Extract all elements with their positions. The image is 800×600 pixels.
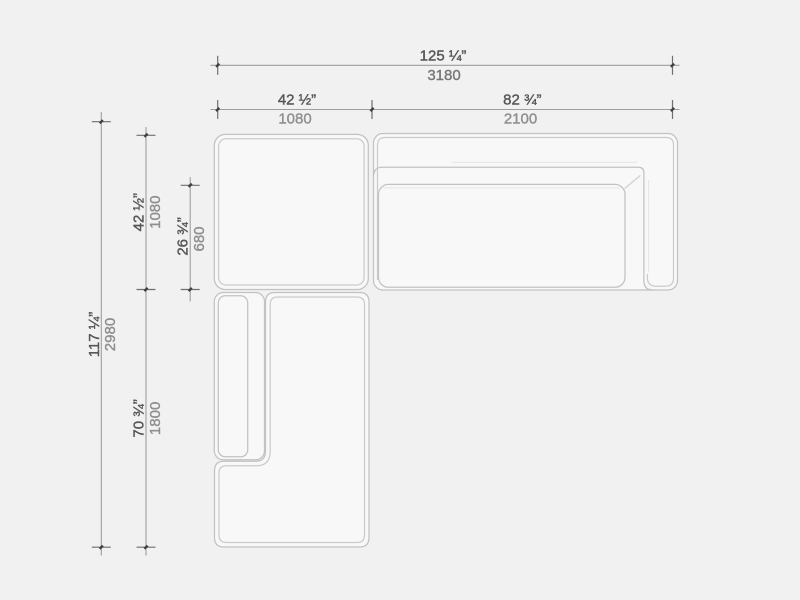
- svg-text:117 ¼”: 117 ¼”: [86, 312, 103, 358]
- svg-text:3180: 3180: [427, 67, 460, 84]
- svg-text:1080: 1080: [147, 196, 164, 229]
- svg-text:82 ¾”: 82 ¾”: [503, 92, 541, 109]
- svg-text:42 ½”: 42 ½”: [131, 193, 148, 231]
- svg-text:125 ¼”: 125 ¼”: [420, 48, 467, 65]
- svg-text:2980: 2980: [102, 318, 119, 351]
- svg-text:680: 680: [191, 226, 208, 251]
- svg-text:26 ¾”: 26 ¾”: [175, 217, 192, 255]
- svg-text:1080: 1080: [278, 110, 311, 127]
- svg-text:1800: 1800: [147, 402, 164, 435]
- svg-text:2100: 2100: [504, 110, 537, 127]
- svg-text:70 ¾”: 70 ¾”: [131, 399, 148, 437]
- svg-text:42 ½”: 42 ½”: [278, 92, 316, 109]
